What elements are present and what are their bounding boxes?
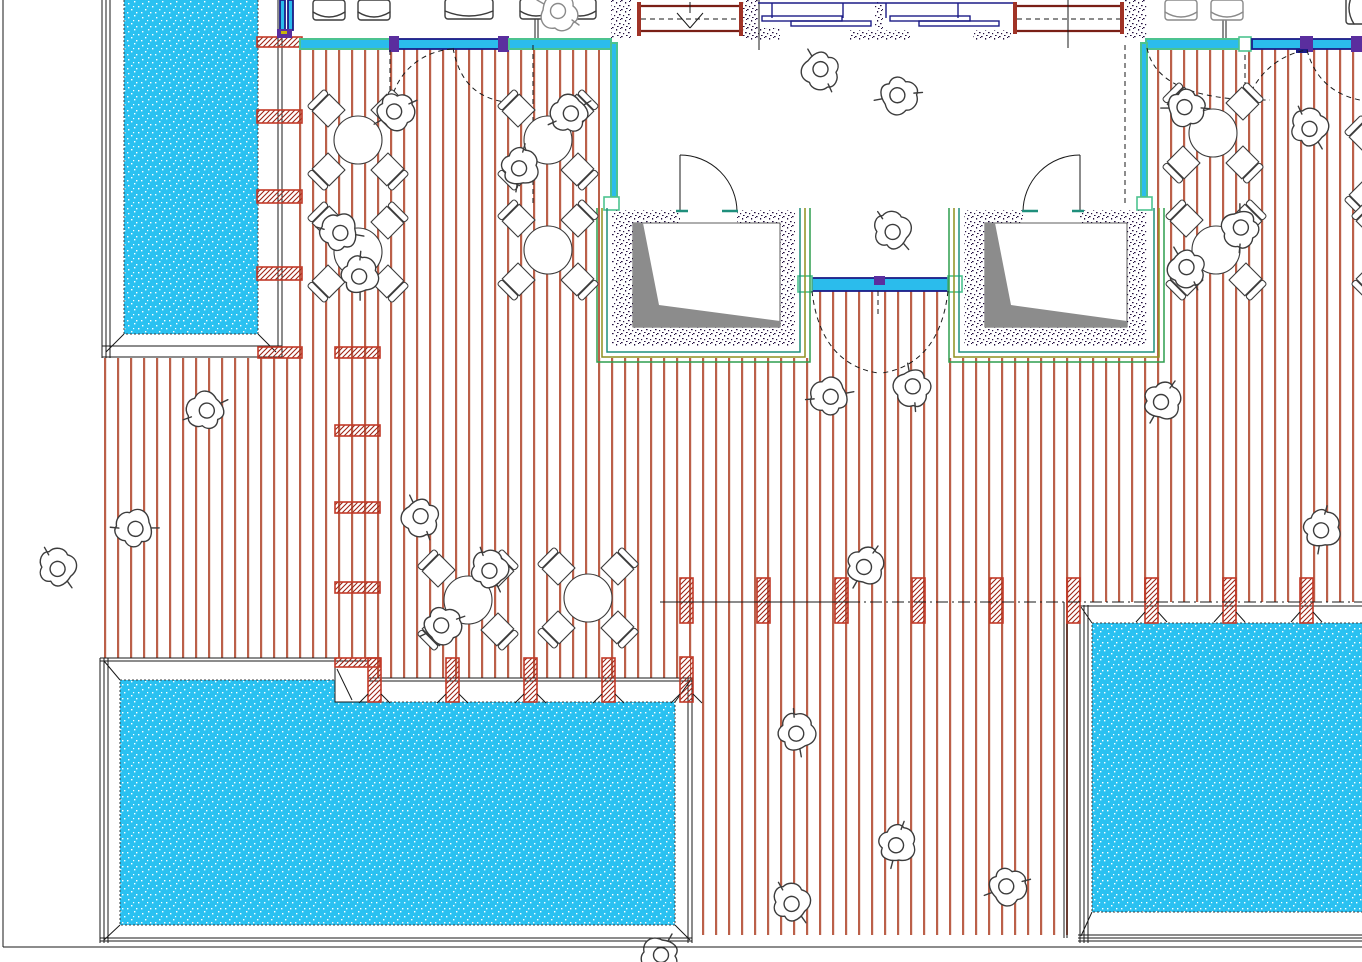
window-band-vertical	[611, 43, 617, 197]
armchair	[1211, 0, 1243, 20]
stair-post	[637, 2, 641, 36]
floor-plan-stage	[0, 0, 1362, 962]
window-mullion	[874, 276, 885, 285]
window-band	[1146, 39, 1248, 49]
pool-edge-pier	[1145, 578, 1158, 623]
pool-corner-step	[335, 667, 368, 702]
door-swing-arc	[1023, 155, 1080, 212]
pool-bottomright-water-specks	[1092, 623, 1362, 912]
wall-sill	[745, 28, 780, 41]
stair-post	[1120, 2, 1124, 34]
ladder-bar	[335, 502, 380, 513]
pool-step-bar	[257, 190, 302, 203]
planter-wall	[737, 210, 795, 223]
window-mullion	[1351, 36, 1362, 52]
deck-pier	[680, 578, 693, 623]
stair-post	[1013, 2, 1017, 34]
deck-pier	[1067, 578, 1080, 623]
person	[32, 542, 85, 592]
person	[792, 45, 846, 97]
planter-wall	[964, 210, 1023, 223]
window-end-cap	[1239, 37, 1251, 51]
stair-post	[739, 2, 743, 36]
pool-bottomleft-water-specks	[120, 680, 675, 925]
wall-sill	[850, 30, 910, 41]
planter-shade	[633, 223, 780, 327]
planter-shade	[985, 223, 1127, 327]
pool-edge-pier	[602, 658, 615, 702]
pool-edge-pier	[1300, 578, 1313, 623]
person	[871, 69, 926, 123]
ladder-bar	[258, 347, 302, 358]
person	[537, 0, 579, 31]
planter-wall	[780, 223, 795, 327]
sofa	[445, 0, 493, 19]
window-mullion	[389, 36, 399, 52]
window-band	[300, 39, 391, 49]
wall-pier	[875, 2, 883, 29]
window-end-cap	[1137, 197, 1152, 210]
wall-pier	[1125, 0, 1147, 38]
window-band-vertical	[1141, 43, 1147, 197]
ladder-bar	[335, 347, 380, 358]
window-mullion	[498, 36, 509, 52]
deck-pier	[757, 578, 770, 623]
pool-step-bar	[257, 37, 302, 47]
pool-step-bar	[257, 110, 302, 123]
planter-wall	[612, 327, 795, 347]
armchair	[358, 0, 390, 20]
planter-wall	[612, 223, 633, 327]
pool-edge-pier	[680, 657, 693, 702]
planter-wall	[1080, 210, 1147, 223]
armchair	[1165, 0, 1197, 20]
pool-edge-pier	[1223, 578, 1236, 623]
door-swing-arc	[680, 155, 737, 212]
deck-pier	[835, 578, 848, 623]
sliding-panel	[791, 21, 871, 26]
armchair	[313, 0, 345, 20]
ladder-bar	[335, 425, 380, 436]
window-band	[393, 39, 502, 49]
window-riser	[280, 0, 285, 30]
pool-edge-pier	[446, 658, 459, 702]
deck-pier	[912, 578, 925, 623]
sliding-panel	[919, 21, 999, 26]
ladder-bar	[335, 582, 380, 593]
deck-pier	[990, 578, 1003, 623]
pool-step-bar	[335, 658, 380, 667]
sliding-panel	[762, 16, 842, 21]
window-band	[509, 39, 611, 49]
armchair	[1346, 0, 1362, 24]
pool-edge-pier	[524, 658, 537, 702]
wall-pier	[611, 0, 631, 38]
window-fitting-detail	[281, 31, 287, 34]
planter-wall	[964, 223, 985, 327]
wall-sill	[973, 30, 1011, 41]
deck-center-corridor	[812, 290, 948, 358]
planter-wall	[964, 327, 1147, 347]
deck-left-upper	[283, 48, 600, 358]
person	[867, 206, 919, 254]
pool-step-bar	[257, 267, 302, 280]
pool-topleft-water-specks	[124, 0, 258, 334]
window-end-cap	[948, 276, 962, 292]
floor-plan	[0, 0, 1362, 962]
window-riser	[288, 0, 293, 30]
planter-wall	[612, 210, 680, 223]
planter-wall	[1127, 223, 1147, 327]
